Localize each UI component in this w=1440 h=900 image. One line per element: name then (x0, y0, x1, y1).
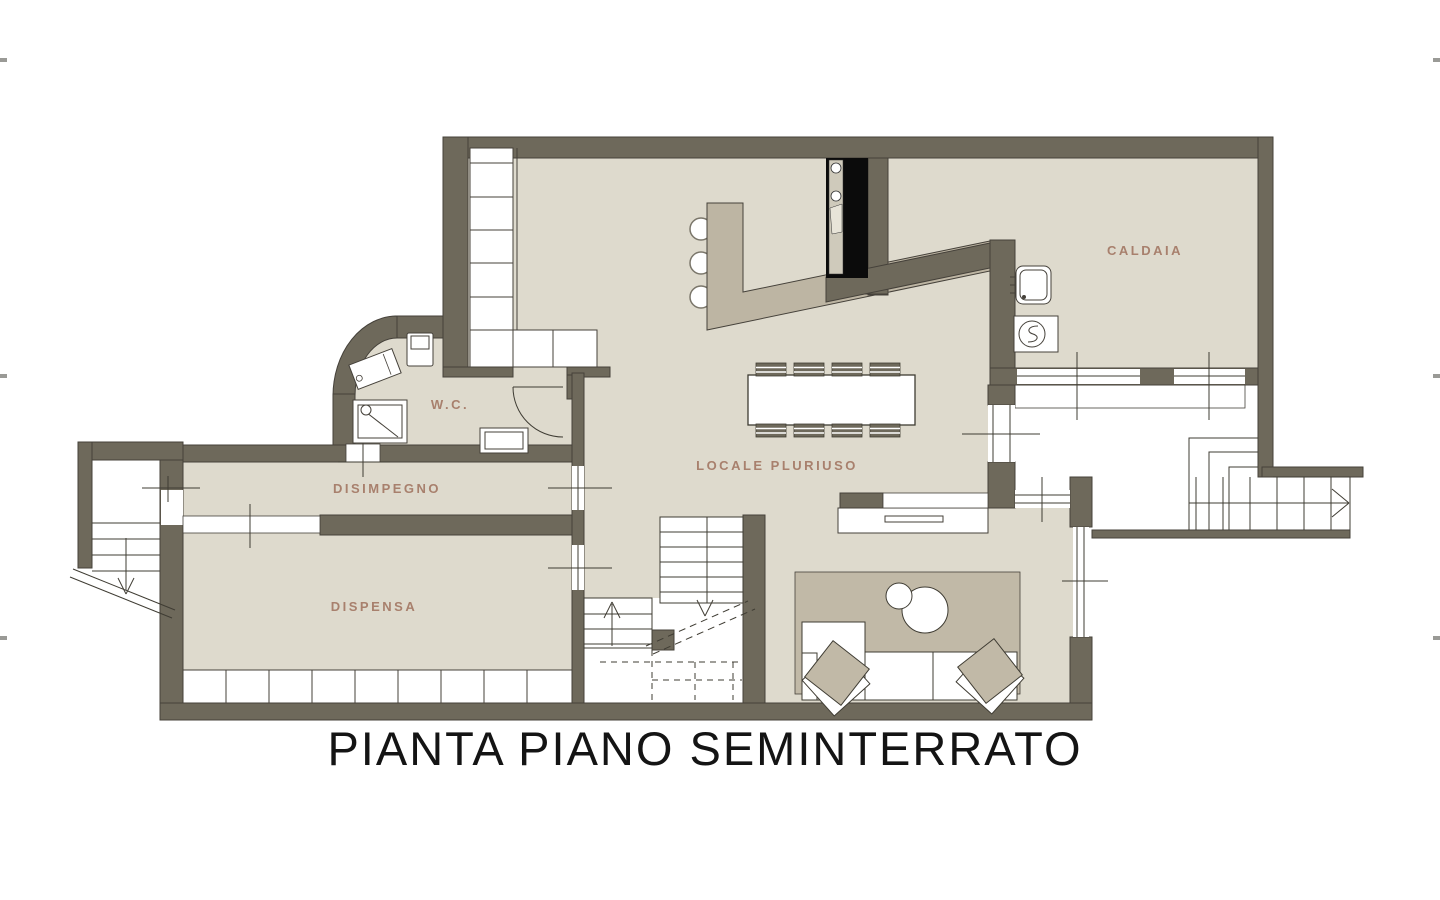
dining-table (748, 375, 915, 425)
room-label-dispensa: DISPENSA (288, 599, 460, 614)
boiler-icon (1014, 316, 1058, 352)
pantry-shelving (183, 670, 572, 703)
edge-tick (0, 374, 7, 378)
plan-title: PIANTA PIANO SEMINTERRATO (0, 721, 1410, 776)
room-label-caldaia: CALDAIA (1070, 243, 1220, 258)
room-label-wc: W.C. (408, 397, 492, 412)
floor-plan-page: CALDAIA W.C. DISIMPEGNO DISPENSA LOCALE … (0, 0, 1440, 900)
edge-tick (1433, 374, 1440, 378)
washbasin-icon (480, 428, 528, 453)
sideboard (838, 508, 988, 533)
edge-tick (1433, 636, 1440, 640)
room-label-locale-pluriuso: LOCALE PLURIUSO (658, 458, 896, 473)
edge-tick (0, 636, 7, 640)
room-label-disimpegno: DISIMPEGNO (298, 481, 476, 496)
fireplace-icon (826, 158, 868, 278)
shower-icon (353, 400, 407, 443)
sliding-panel (883, 493, 988, 508)
toilet-icon (407, 333, 433, 366)
edge-tick (1433, 58, 1440, 62)
sink-icon (1010, 266, 1051, 304)
edge-tick (0, 58, 7, 62)
